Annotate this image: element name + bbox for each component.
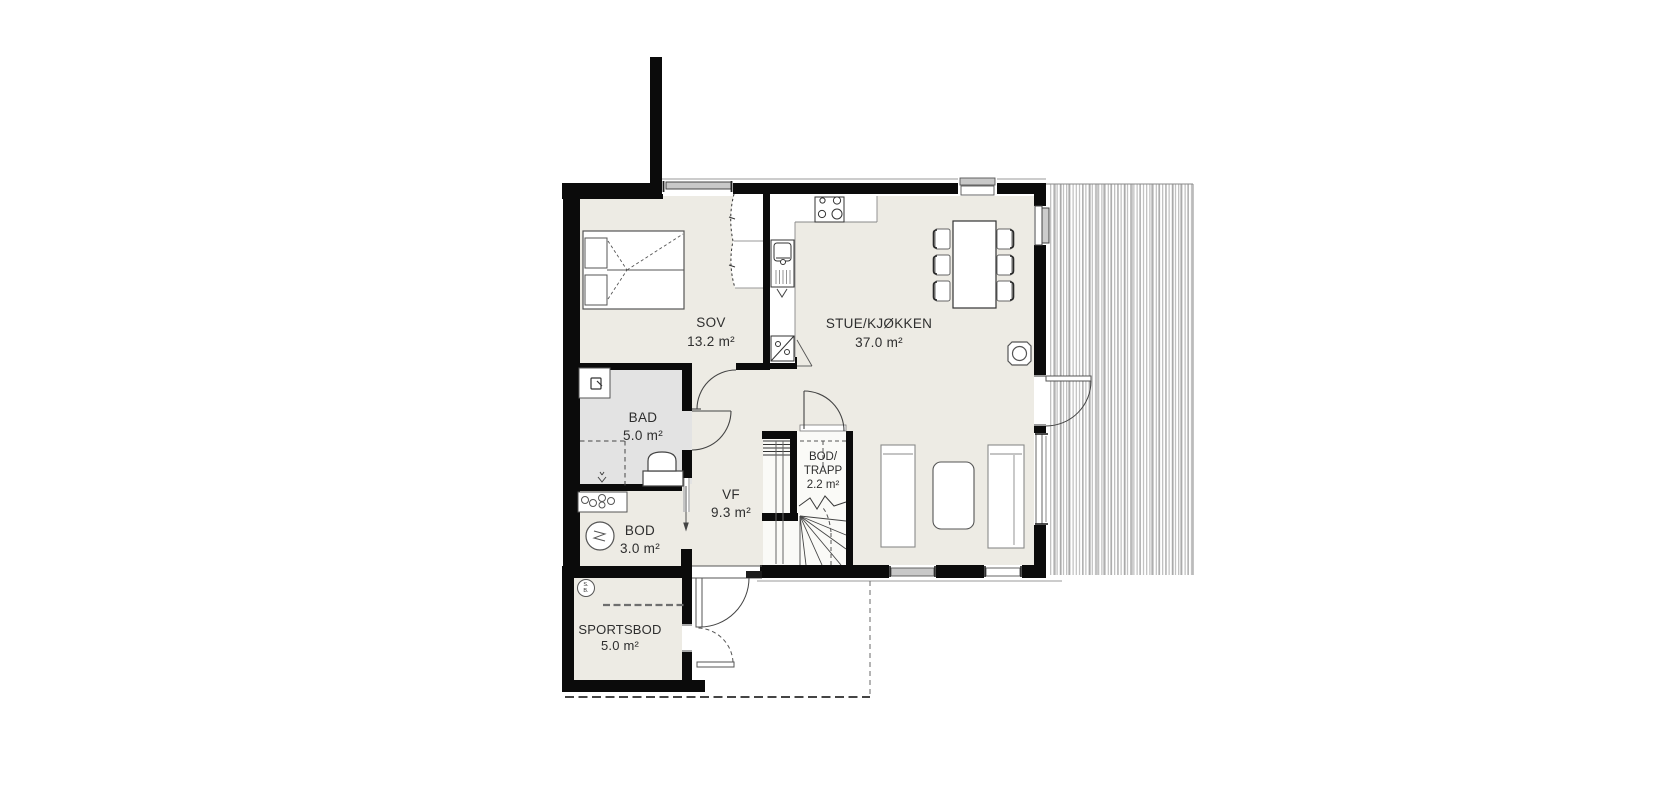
svg-text:5.0 m²: 5.0 m² bbox=[601, 638, 640, 653]
svg-text:BOD/: BOD/ bbox=[809, 451, 838, 463]
svg-text:5.0 m²: 5.0 m² bbox=[623, 428, 663, 443]
svg-text:SOV: SOV bbox=[696, 315, 725, 330]
svg-text:BAD: BAD bbox=[629, 410, 658, 425]
svg-text:13.2 m²: 13.2 m² bbox=[687, 334, 735, 349]
svg-text:STUE/KJØKKEN: STUE/KJØKKEN bbox=[826, 316, 932, 331]
svg-text:2.2 m²: 2.2 m² bbox=[807, 479, 840, 491]
svg-text:TRAPP: TRAPP bbox=[804, 465, 843, 477]
svg-text:B.: B. bbox=[583, 588, 589, 594]
svg-text:3.0 m²: 3.0 m² bbox=[620, 541, 660, 556]
svg-text:9.3 m²: 9.3 m² bbox=[711, 505, 751, 520]
svg-text:37.0 m²: 37.0 m² bbox=[855, 335, 903, 350]
svg-text:SPORTSBOD: SPORTSBOD bbox=[578, 622, 661, 637]
svg-text:VF: VF bbox=[722, 487, 740, 502]
svg-text:BOD: BOD bbox=[625, 523, 655, 538]
